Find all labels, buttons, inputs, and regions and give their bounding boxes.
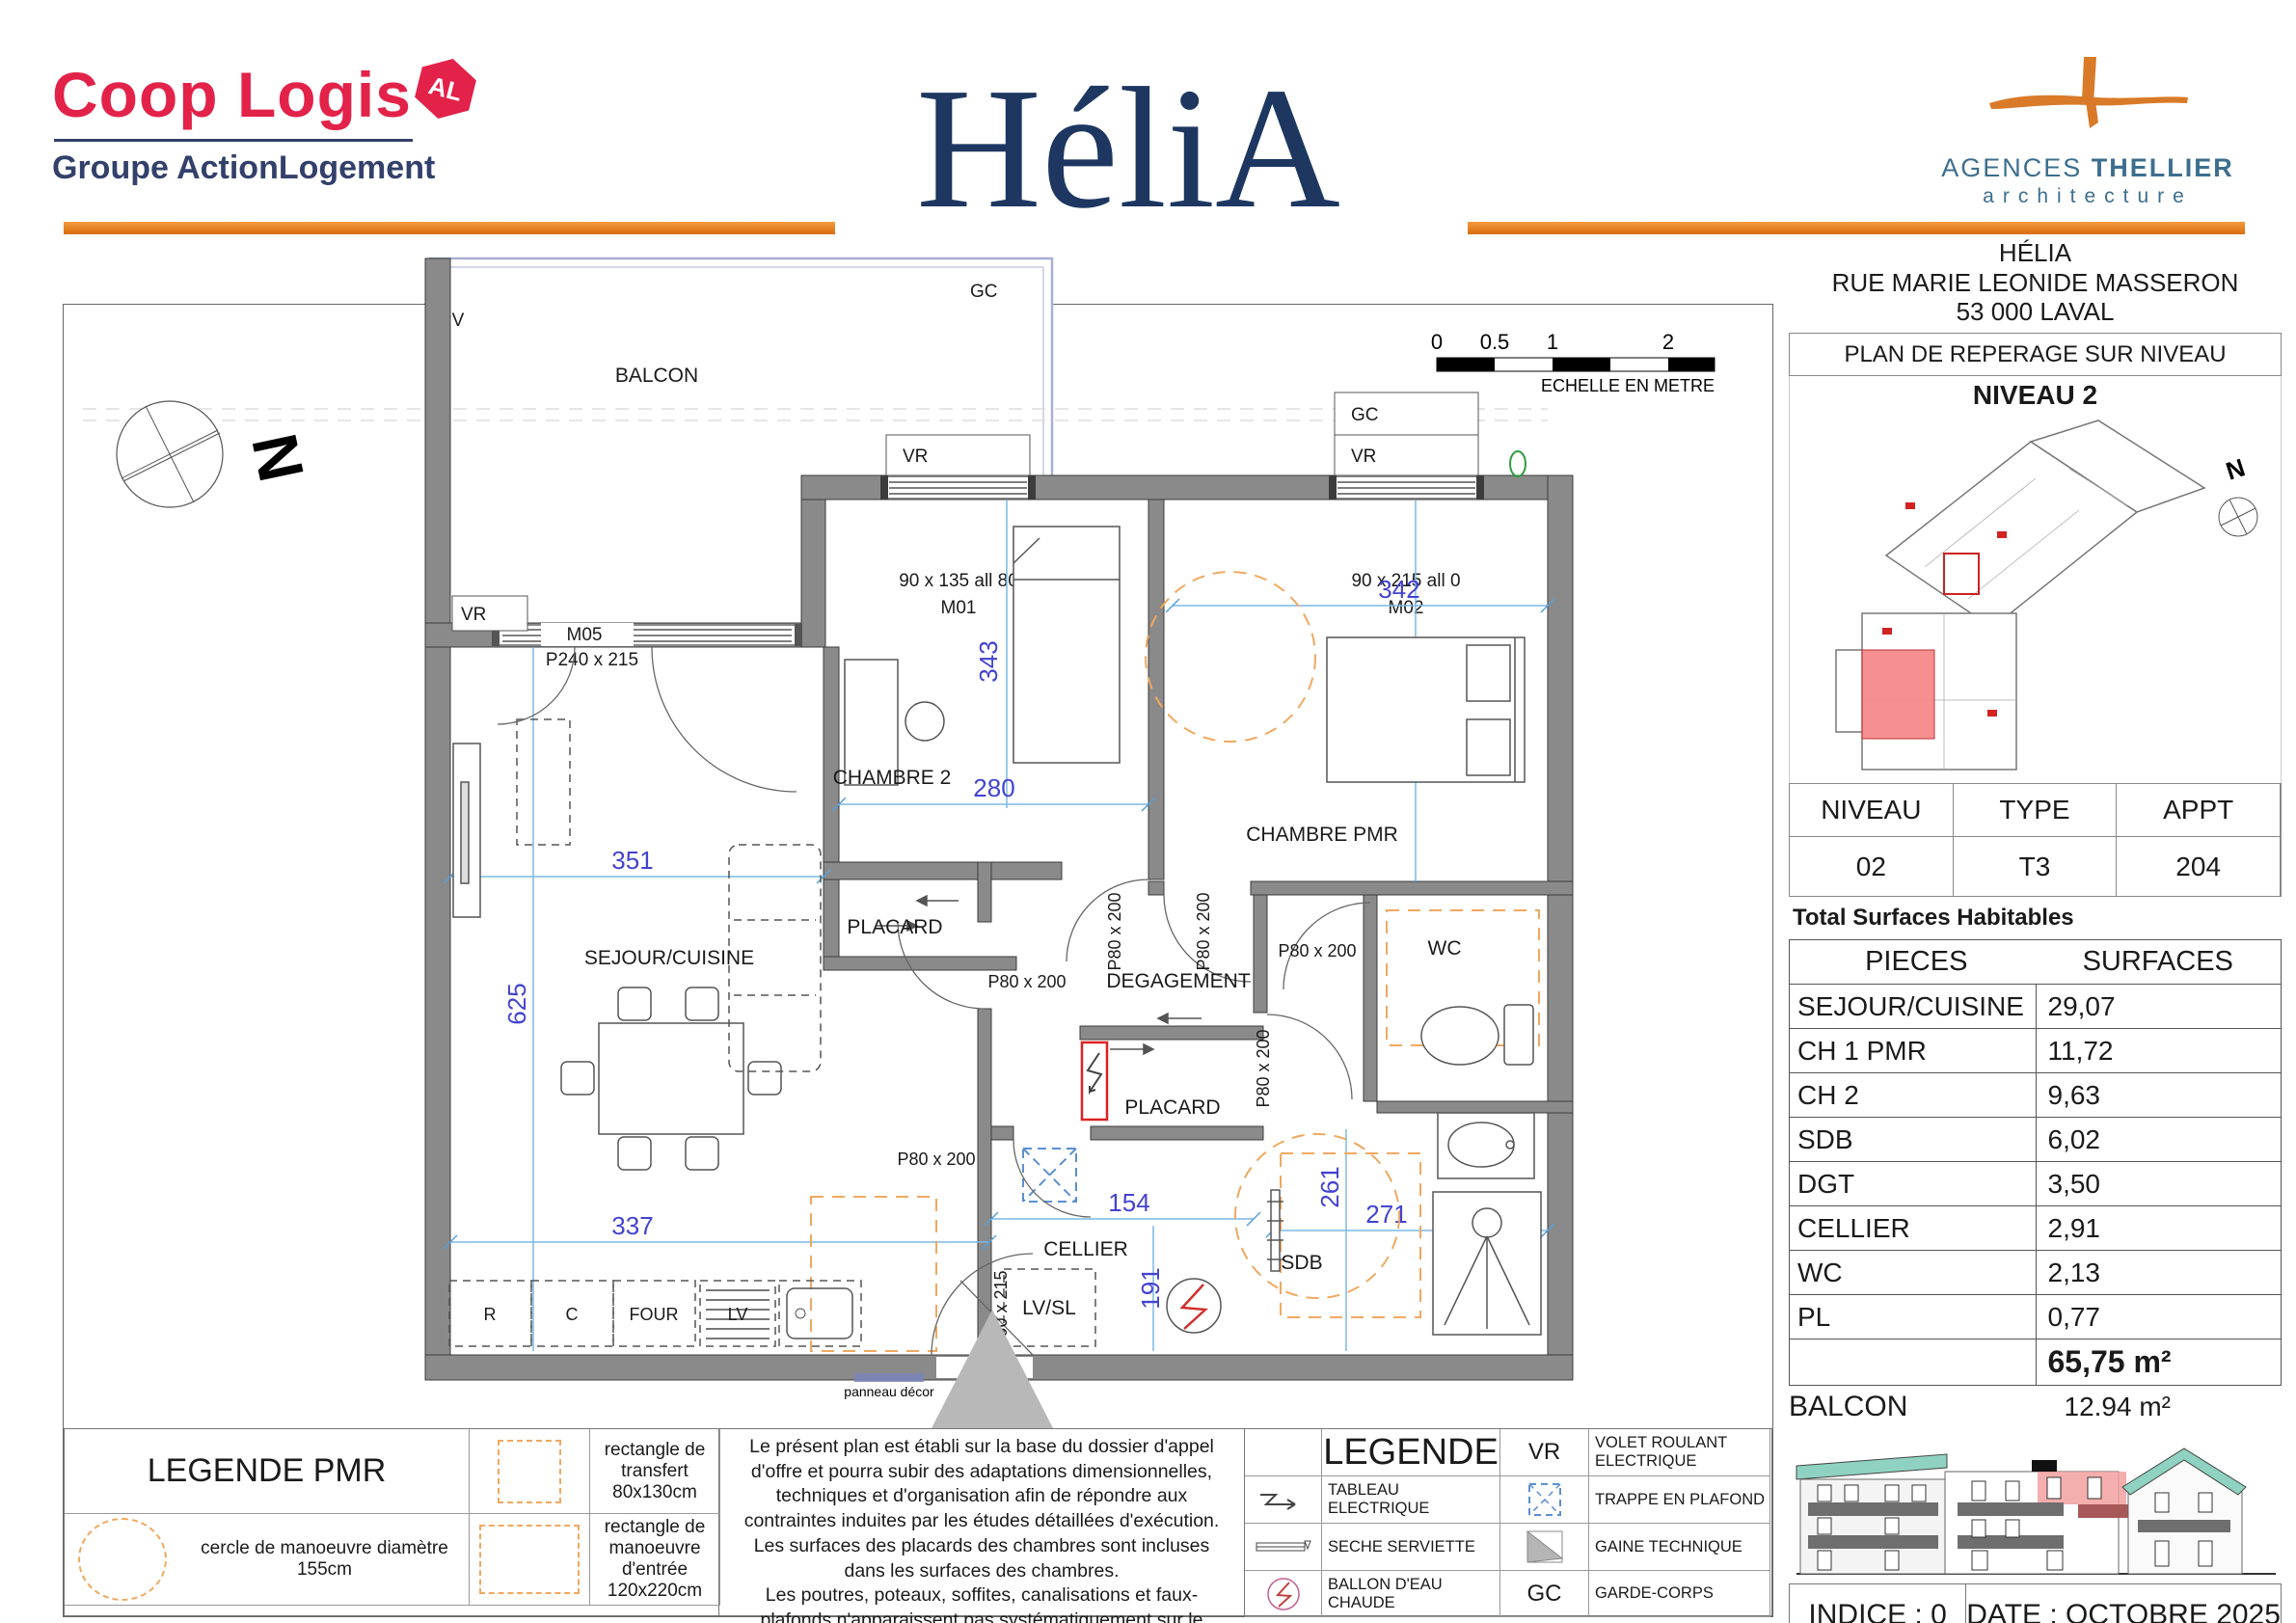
table-row: CELLIER2,91 xyxy=(1790,1206,2281,1251)
legend-gaine-label: GAINE TECHNIQUE xyxy=(1589,1524,1770,1571)
dim-342: 342 xyxy=(1378,575,1419,604)
title-block-sidebar: HÉLIA RUE MARIE LEONIDE MASSERON 53 000 … xyxy=(1789,238,2282,1623)
plan-frame: GC PV BALCON xyxy=(63,304,1773,1617)
toilet xyxy=(1421,1007,1499,1065)
table-row: DGT3,50 xyxy=(1790,1162,2281,1206)
plan-reperage-title: PLAN DE REPERAGE SUR NIVEAU xyxy=(1789,333,2282,376)
room-label-placard-hall: PLACARD xyxy=(1124,1096,1220,1119)
entree-symbol xyxy=(470,1514,590,1606)
indice-label: INDICE : 0 xyxy=(1790,1584,1966,1623)
unit-value-niveau: 02 xyxy=(1790,837,1954,897)
scale-1: 1 xyxy=(1547,330,1558,354)
bed-chambre2 xyxy=(1013,527,1120,763)
floorplan-sheet: Coop LogisAL Groupe ActionLogement HéliA… xyxy=(0,0,2296,1623)
header-orange-bar-right xyxy=(1468,222,2245,234)
kitchen-label-four: FOUR xyxy=(630,1305,679,1324)
legend-vr-abbr: VR xyxy=(1500,1429,1589,1476)
project-title: HéliA xyxy=(791,53,1466,244)
gc-label-m02: GC xyxy=(1351,405,1379,425)
transfert-rect-icon xyxy=(498,1440,561,1503)
m05-label: M05 xyxy=(567,625,603,645)
panneau-decor-label: panneau décor xyxy=(844,1384,934,1399)
room-label-degagement: DEGAGEMENT xyxy=(1106,970,1251,992)
desk-chair xyxy=(905,702,944,741)
dim-343-left: 343 xyxy=(974,640,1003,682)
room-label-sejour: SEJOUR/CUISINE xyxy=(584,947,754,969)
keyplan-north-letter: N xyxy=(2223,452,2249,485)
coop-logis-group-label: Groupe ActionLogement xyxy=(52,149,476,187)
vr-label-m01: VR xyxy=(903,446,928,467)
tableau-electrique-symbol xyxy=(1082,1042,1107,1120)
transfert-symbol xyxy=(470,1429,590,1514)
project-address: HÉLIA RUE MARIE LEONIDE MASSERON 53 000 … xyxy=(1789,238,2282,327)
dim-261: 261 xyxy=(1315,1166,1344,1207)
scale-caption: ECHELLE EN METRE xyxy=(1541,376,1715,395)
legende-box: LEGENDE VR VOLET ROULANT ELECTRIQUE TABL… xyxy=(1245,1428,1772,1616)
scale-0: 0 xyxy=(1431,330,1443,354)
table-row: PL0,77 xyxy=(1790,1295,2281,1339)
kitchen-label-c: C xyxy=(566,1305,579,1324)
label-lvsl: LV/SL xyxy=(1022,1297,1076,1319)
unit-header-appt: APPT xyxy=(2117,784,2281,837)
door-p80-sdb: P80 x 200 xyxy=(1254,1029,1273,1107)
thellier-logo: AGENCES THELLIER architecture xyxy=(1914,53,2261,208)
legend-title: LEGENDE xyxy=(1322,1429,1500,1476)
surfaces-table: PIECES SURFACES SEJOUR/CUISINE29,07 CH 1… xyxy=(1789,939,2282,1386)
table-row: SDB6,02 xyxy=(1790,1118,2281,1162)
room-label-placard2: PLACARD xyxy=(847,916,942,938)
gc-top-label: GC xyxy=(970,282,998,302)
seche-serviette-icon xyxy=(1245,1524,1322,1571)
entree-rect-icon xyxy=(479,1525,580,1594)
thellier-subtitle: architecture xyxy=(1914,185,2261,208)
kitchen-label-lv: LV xyxy=(728,1305,748,1324)
m01-dim-label: 90 x 135 all 80 xyxy=(899,571,1018,591)
unit-header-niveau: NIVEAU xyxy=(1790,784,1954,837)
disclaimer-line: techniques et d'organisation afin de rép… xyxy=(733,1484,1230,1533)
legend-row: LEGENDE PMR rectangle de transfert80x130… xyxy=(64,1428,1772,1616)
scale-2: 2 xyxy=(1662,330,1674,354)
unit-value-appt: 204 xyxy=(2117,837,2281,897)
kitchen-sink xyxy=(787,1288,852,1339)
kitchen-sink-box xyxy=(779,1281,861,1346)
disclaimer-box: Le présent plan est établi sur la base d… xyxy=(719,1428,1245,1616)
legend-trappe-label: TRAPPE EN PLAFOND xyxy=(1589,1476,1770,1524)
panneau-decor-mark xyxy=(854,1373,924,1382)
room-label-chambre2: CHAMBRE 2 xyxy=(833,767,952,789)
keyplan-compass: N xyxy=(2219,452,2257,536)
m01-label: M01 xyxy=(941,598,977,618)
surfaces-total-value: 65,75 m² xyxy=(2036,1339,2282,1385)
unit-value-type: T3 xyxy=(1954,837,2118,897)
surfaces-header-row: PIECES SURFACES xyxy=(1790,940,2281,985)
dim-280: 280 xyxy=(973,773,1014,802)
scale-bar: 0 0.5 1 2 ECHELLE EN METRE xyxy=(1431,330,1715,395)
legend-seche-label: SECHE SERVIETTE xyxy=(1322,1524,1500,1571)
kitchen-label-r: R xyxy=(484,1305,497,1324)
table-row: CH 29,63 xyxy=(1790,1073,2281,1118)
table-row: CH 1 PMR11,72 xyxy=(1790,1029,2281,1073)
date-label: DATE : OCTOBRE 2025 xyxy=(1966,1584,2281,1623)
address-line3: 53 000 LAVAL xyxy=(1789,297,2282,327)
brush-cross-icon xyxy=(1982,53,2194,145)
door-p80-pmr: P80 x 200 xyxy=(1194,892,1213,970)
ballon-eau-chaude xyxy=(1167,1279,1221,1333)
disclaimer-line: Le présent plan est établi sur la base d… xyxy=(733,1435,1230,1484)
unit-header-type: TYPE xyxy=(1954,784,2118,837)
legende-pmr-box: LEGENDE PMR rectangle de transfert80x130… xyxy=(64,1428,719,1616)
green-marker-icon xyxy=(1510,451,1526,476)
highlighted-unit xyxy=(1862,650,1934,739)
rug xyxy=(517,719,570,845)
legend-empty-cell xyxy=(1245,1429,1322,1476)
door-p80-wc: P80 x 200 xyxy=(1278,941,1356,960)
floor-plan-drawing: GC PV BALCON xyxy=(64,257,1772,1618)
disclaimer-line: Les poutres, poteaux, soffites, canalisa… xyxy=(733,1583,1230,1623)
trappe-plafond-symbol xyxy=(1023,1149,1076,1202)
keyplan-panel: NIVEAU 2 xyxy=(1789,376,2282,783)
scale-05: 0.5 xyxy=(1480,330,1510,354)
vr-label-m05: VR xyxy=(461,605,486,625)
balcon-row: BALCON 12.94 m² xyxy=(1789,1386,2282,1427)
balcon-value: 12.94 m² xyxy=(2036,1392,2282,1422)
dim-351: 351 xyxy=(611,846,653,875)
legend-vr-label: VOLET ROULANT ELECTRIQUE xyxy=(1589,1429,1770,1476)
surfaces-title: Total Surfaces Habitables xyxy=(1789,897,2282,939)
balcon-label: BALCON xyxy=(1789,1391,2036,1423)
trappe-icon xyxy=(1500,1476,1589,1524)
disclaimer-line: Les surfaces des placards des chambres s… xyxy=(733,1534,1230,1583)
table-row: SEJOUR/CUISINE29,07 xyxy=(1790,985,2281,1029)
entree-label: rectangle de manoeuvre d'entrée120x220cm xyxy=(590,1514,720,1606)
north-letter: N xyxy=(238,428,317,488)
vr-label-m02: VR xyxy=(1351,446,1376,467)
legend-gc-label: GARDE-CORPS xyxy=(1589,1571,1770,1617)
surfaces-total-row: 65,75 m² xyxy=(1790,1339,2281,1385)
coop-logis-logo: Coop LogisAL Groupe ActionLogement xyxy=(52,58,476,187)
legende-pmr-title: LEGENDE PMR xyxy=(65,1429,470,1514)
door-swings xyxy=(498,647,1370,1355)
room-label-chambre-pmr: CHAMBRE PMR xyxy=(1246,824,1398,846)
niveau-title: NIVEAU 2 xyxy=(1790,376,2281,411)
transfert-label: rectangle de transfert80x130cm xyxy=(590,1429,720,1514)
room-label-sdb: SDB xyxy=(1281,1252,1322,1274)
surfaces-header-pieces: PIECES xyxy=(1790,946,2036,978)
al-hexagon-icon: AL xyxy=(411,52,480,125)
coop-logis-wordmark: Coop Logis xyxy=(52,58,412,131)
door-p80-hall: P80 x 200 xyxy=(987,972,1066,991)
dim-271: 271 xyxy=(1365,1200,1407,1229)
keyplan-drawing: N xyxy=(1790,411,2282,777)
m05-dim-label: P240 x 215 xyxy=(546,650,638,670)
door-p80-cellier: P80 x 200 xyxy=(897,1150,975,1169)
circle-label: cercle de manoeuvre diamètre 155cm xyxy=(180,1538,469,1581)
sink-tap xyxy=(796,1309,805,1318)
dim-191: 191 xyxy=(1136,1267,1165,1309)
legend-gc-abbr: GC xyxy=(1500,1571,1589,1617)
maneuver-circle-icon xyxy=(78,1518,167,1601)
elevation-drawing xyxy=(1789,1427,2282,1583)
dashed-furniture xyxy=(449,719,1095,1346)
dining-table xyxy=(599,1023,743,1134)
legend-ballon-label: BALLON D'EAU CHAUDE xyxy=(1322,1571,1500,1617)
room-label-cellier: CELLIER xyxy=(1043,1238,1128,1260)
address-line2: RUE MARIE LEONIDE MASSERON xyxy=(1789,268,2282,298)
dim-625: 625 xyxy=(502,983,531,1024)
table-row: WC2,13 xyxy=(1790,1251,2281,1295)
door-p80-chambre2: P80 x 200 xyxy=(1105,892,1124,970)
room-label-balcon: BALCON xyxy=(615,365,698,387)
sidebar-footer: INDICE : 0 DATE : OCTOBRE 2025 xyxy=(1789,1583,2282,1623)
ballon-eau-chaude-icon xyxy=(1245,1571,1322,1617)
header-orange-bar-left xyxy=(64,222,835,234)
dim-337: 337 xyxy=(611,1211,653,1240)
tableau-electrique-icon xyxy=(1245,1476,1322,1524)
north-compass: N xyxy=(117,401,318,507)
unit-table: NIVEAU TYPE APPT 02 T3 204 xyxy=(1789,783,2282,897)
circle-cell: cercle de manoeuvre diamètre 155cm xyxy=(65,1514,470,1606)
dim-154: 154 xyxy=(1108,1188,1149,1217)
legend-tableau-label: TABLEAU ELECTRIQUE xyxy=(1322,1476,1500,1524)
thellier-name: AGENCES THELLIER xyxy=(1914,153,2261,183)
logo-divider xyxy=(54,139,413,142)
room-label-wc: WC xyxy=(1428,937,1462,960)
surfaces-header-surfaces: SURFACES xyxy=(2036,940,2282,984)
address-line1: HÉLIA xyxy=(1789,238,2282,268)
elevation-panel xyxy=(1789,1427,2282,1583)
gaine-technique-icon xyxy=(1500,1524,1589,1571)
